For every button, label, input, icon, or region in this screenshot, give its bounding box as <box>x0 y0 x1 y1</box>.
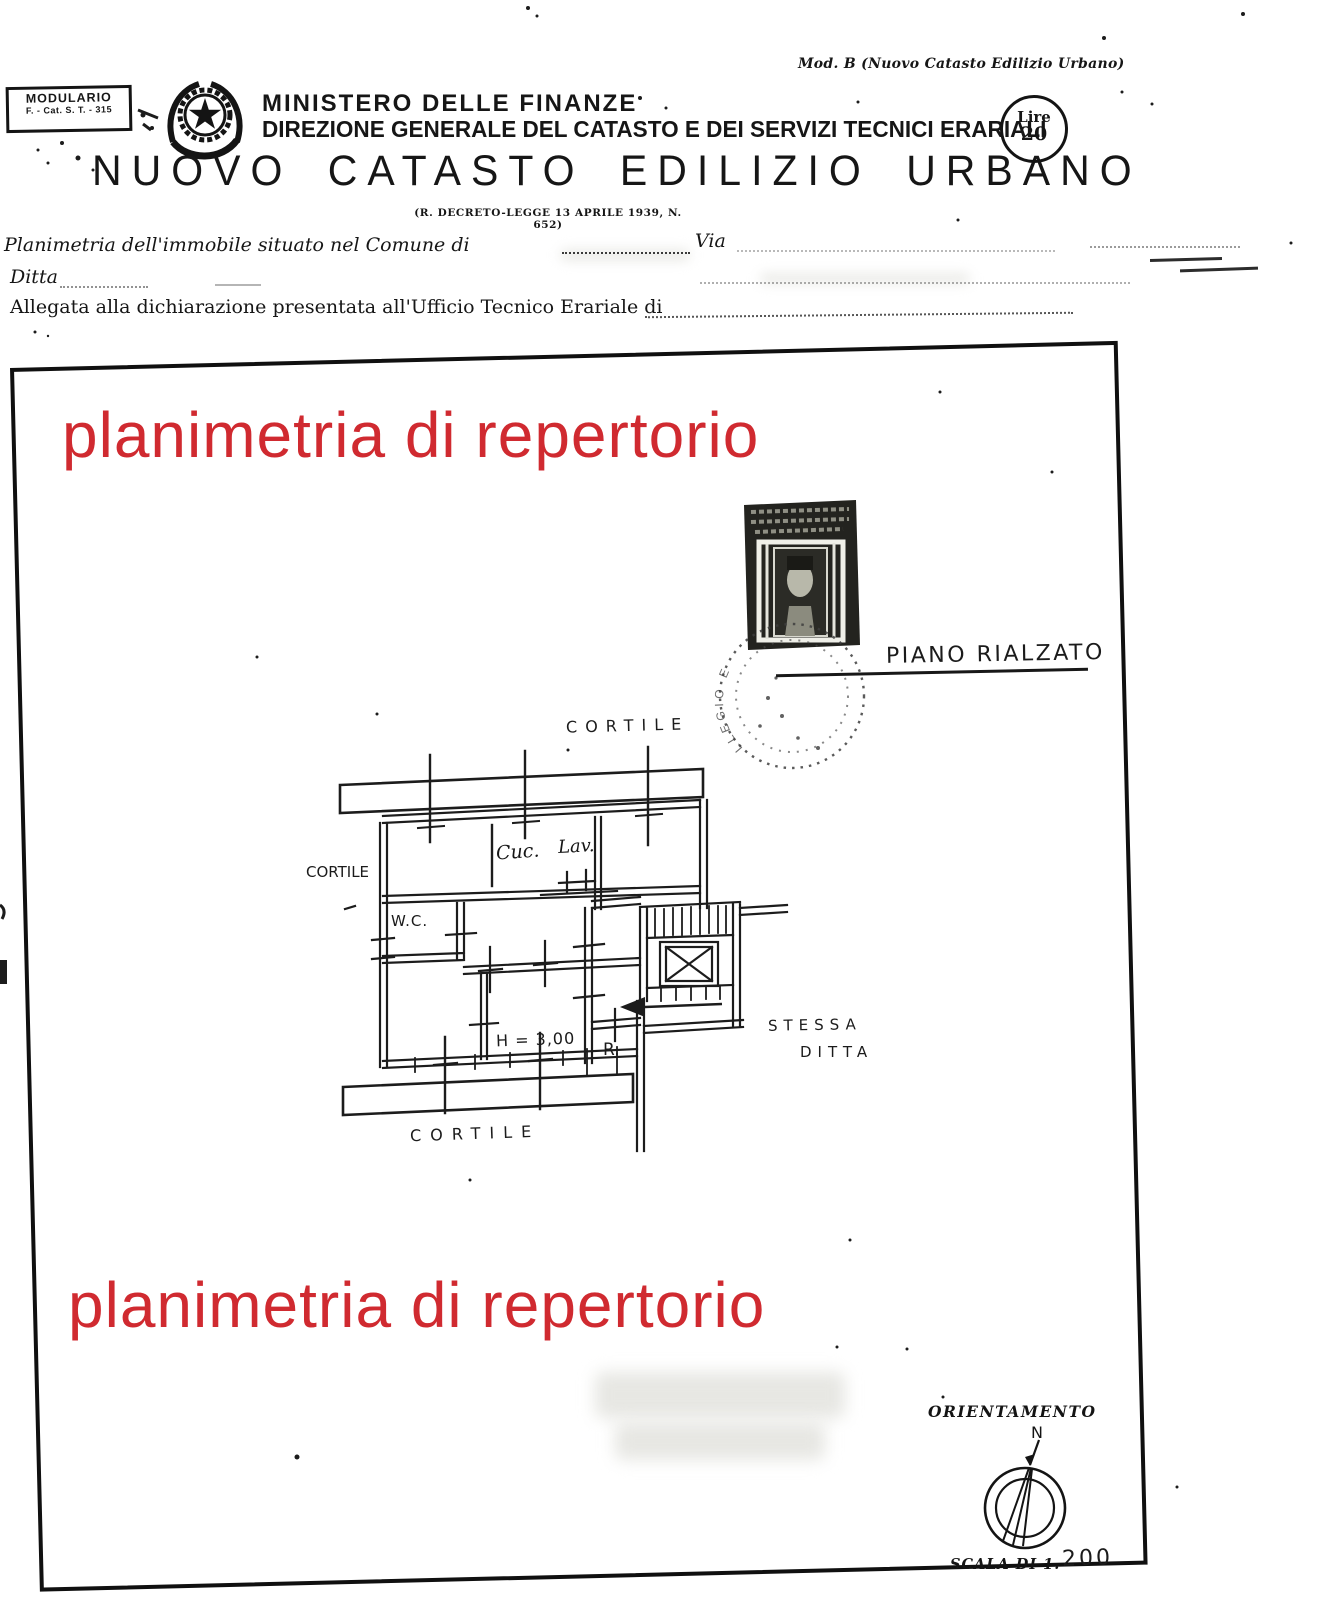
scanned-cadastral-document: MODULARIO F. - Cat. S. T. - 315 Mod. B (… <box>0 0 1328 1600</box>
dotted-line <box>645 312 1073 318</box>
red-watermark-top: planimetria di repertorio <box>62 398 759 472</box>
red-watermark-bottom: planimetria di repertorio <box>68 1268 765 1342</box>
floorplan-drawing <box>295 695 885 1155</box>
room-r-label: R. <box>603 1040 620 1060</box>
modulario-line2: F. - Cat. S. T. - 315 <box>9 104 129 116</box>
ink-dash <box>1180 267 1258 273</box>
neighbor-note-line1: STESSA <box>768 1015 862 1035</box>
document-title: NUOVO CATASTO EDILIZIO URBANO <box>92 146 1142 195</box>
ink-dash <box>1150 257 1222 262</box>
north-arrowhead <box>1025 1454 1035 1466</box>
fee-stamp-circle: Lire 20 <box>1000 95 1068 163</box>
emblem-star <box>189 98 221 129</box>
form-line1-label: Planimetria dell'immobile situato nel Co… <box>4 234 470 256</box>
dotted-line <box>60 286 148 288</box>
ceiling-height-label: H = 3,00 <box>496 1029 576 1051</box>
courtyard-left-label: CORTILE <box>306 860 323 886</box>
fee-amount: 20 <box>1003 125 1065 144</box>
north-letter: N <box>1031 1423 1043 1442</box>
courtyard-top-label: CORTILE <box>566 714 690 736</box>
dotted-line <box>737 250 1055 252</box>
orientation-label: ORIENTAMENTO <box>928 1402 1097 1421</box>
neighbor-note-line2: DITTA <box>800 1043 873 1061</box>
faint-dash <box>215 284 261 286</box>
ministry-line2: DIREZIONE GENERALE DEL CATASTO E DEI SER… <box>262 116 1046 143</box>
dotted-line <box>562 252 690 254</box>
dotted-line <box>1090 246 1240 248</box>
scale-label: SCALA DI 1. <box>950 1556 1060 1573</box>
document-subtitle: (R. DECRETO-LEGGE 13 APRILE 1939, N. 652… <box>398 207 698 231</box>
form-line2-label: Ditta <box>10 266 58 288</box>
entry-arrow <box>620 997 645 1017</box>
balcony-bottom <box>343 1074 633 1115</box>
floor-label: PIANO RIALZATO <box>886 640 1105 669</box>
form-line3-label: Allegata alla dichiarazione presentata a… <box>10 296 663 318</box>
faint-stamp-residue <box>615 1422 825 1460</box>
laundry-label: Lav. <box>557 835 595 858</box>
wc-label: W.C. <box>391 912 428 930</box>
form-via-label: Via <box>695 230 726 252</box>
modulario-box: MODULARIO F. - Cat. S. T. - 315 <box>6 85 133 133</box>
compass-icon: N <box>955 1420 1095 1555</box>
ministry-line1: MINISTERO DELLE FINANZE <box>262 90 637 119</box>
kitchen-label: Cuc. <box>495 840 540 865</box>
faint-stamp-residue <box>595 1372 845 1418</box>
dotted-line <box>700 282 1130 284</box>
mod-b-label: Mod. B (Nuovo Catasto Edilizio Urbano) <box>798 56 1125 72</box>
scale-value: 200 <box>1062 1545 1114 1572</box>
